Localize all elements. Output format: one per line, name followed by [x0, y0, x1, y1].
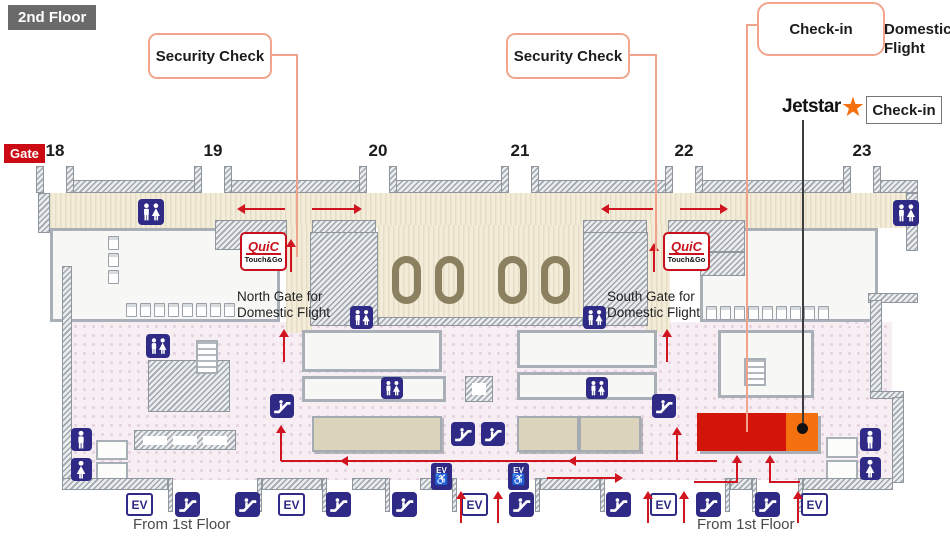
restroom-men-women-icon — [893, 200, 919, 226]
counter-center-left — [312, 416, 442, 452]
hall-bottom-wall — [378, 317, 583, 326]
gate-opening — [673, 180, 695, 193]
outer-wall-bottom-5 — [540, 478, 600, 490]
outer-wall-bottom-2 — [262, 478, 322, 490]
floor-label: 2nd Floor — [8, 5, 96, 30]
gate-wall-stub — [359, 166, 367, 193]
escalator-icon — [606, 492, 631, 517]
restroom-men-women-icon — [381, 377, 403, 399]
hall-oval-3 — [498, 256, 527, 304]
escalator-icon — [652, 394, 676, 418]
jetstar-logo: Jetstar★ — [782, 96, 865, 118]
leader-security-left-v — [296, 54, 298, 257]
domestic-flight-label: Domestic Flight — [884, 20, 950, 58]
restroom-women-icon — [860, 457, 881, 480]
gate-number-23: 23 — [847, 141, 877, 161]
hall-oval-1 — [392, 256, 421, 304]
escalator-icon — [270, 394, 294, 418]
counter-block-left — [134, 430, 236, 450]
room-e — [718, 330, 814, 398]
gate-number-20: 20 — [363, 141, 393, 161]
elevator-ev-icon: EV — [278, 493, 305, 516]
hall-oval-4 — [541, 256, 570, 304]
restroom-men-icon — [71, 428, 92, 451]
gate-opening — [509, 180, 531, 193]
security-check-callout-right: Security Check — [506, 33, 630, 79]
escalator-icon — [326, 492, 351, 517]
escalator-icon — [451, 422, 475, 446]
gate-opening — [202, 180, 224, 193]
leader-jetstar-dot — [797, 423, 808, 434]
restroom-men-women-icon — [350, 306, 373, 329]
gate-wall-stub — [389, 166, 397, 193]
leader-security-right-v — [655, 54, 657, 251]
gate-opening — [851, 180, 873, 193]
small-room-left-1 — [96, 440, 128, 460]
leader-jetstar — [802, 120, 804, 428]
outer-wall-bottom-7 — [803, 478, 893, 490]
quic-touch-and-go-logo: QuiCTouch&Go — [663, 232, 710, 271]
restroom-men-women-icon — [586, 377, 608, 399]
seating-column-north — [108, 236, 119, 284]
wall-right-v2 — [892, 397, 904, 483]
gate-number-22: 22 — [669, 141, 699, 161]
elevator-ev-icon: EV — [801, 493, 828, 516]
checkin-counter-red — [697, 413, 786, 451]
entrance-stub — [725, 478, 730, 512]
gate-number-21: 21 — [505, 141, 535, 161]
seating-row-north — [126, 303, 235, 317]
gate-wall-stub — [843, 166, 851, 193]
restroom-men-women-icon — [583, 306, 606, 329]
wall-right-v1 — [870, 300, 882, 395]
quic-touch-and-go-logo: QuiCTouch&Go — [240, 232, 287, 271]
counter-center-right-2 — [579, 416, 641, 452]
restroom-men-women-icon — [138, 199, 164, 225]
jetstar-star-icon: ★ — [841, 92, 865, 122]
south-gate-label: South Gate for Domestic Flight — [607, 289, 700, 321]
north-gate-label: North Gate for Domestic Flight — [237, 289, 330, 321]
outer-wall-bottom-6 — [730, 478, 752, 490]
leader-checkin-v — [746, 24, 748, 432]
gate-wall-stub — [695, 166, 703, 193]
seating-row-south — [706, 306, 829, 320]
entrance-stub — [535, 478, 540, 512]
escalator-icon — [509, 492, 534, 517]
room-a — [302, 330, 442, 372]
gate-badge: Gate — [4, 144, 45, 163]
entrance-stub — [168, 478, 173, 512]
escalator-icon — [175, 492, 200, 517]
small-room-right-2 — [826, 460, 858, 480]
from-first-floor-label-right: From 1st Floor — [697, 516, 795, 533]
escalator-icon — [392, 492, 417, 517]
restroom-women-icon — [71, 458, 92, 481]
entrance-stub — [600, 478, 605, 512]
restroom-men-women-icon — [146, 334, 170, 358]
gate-opening — [44, 180, 66, 193]
from-first-floor-label-left: From 1st Floor — [133, 516, 231, 533]
entrance-stub — [385, 478, 390, 512]
escalator-icon — [696, 492, 721, 517]
gate-wall-stub — [873, 166, 881, 193]
kiosk-block — [465, 376, 493, 402]
gate-number-19: 19 — [198, 141, 228, 161]
stairs-north — [196, 340, 218, 374]
escalator-icon — [481, 422, 505, 446]
escalator-icon — [235, 492, 260, 517]
accessible-elevator-icon: EV♿ — [431, 463, 452, 490]
escalator-icon — [755, 492, 780, 517]
security-check-callout-left: Security Check — [148, 33, 272, 79]
gate-wall-stub — [66, 166, 74, 193]
restroom-men-icon — [860, 428, 881, 451]
elevator-ev-icon: EV — [650, 493, 677, 516]
jetstar-checkin-box: Check-in — [866, 96, 942, 124]
accessible-elevator-icon: EV♿ — [508, 463, 529, 490]
gate-opening — [367, 180, 389, 193]
gate-wall-stub — [36, 166, 44, 193]
airport-floor-map: EV EV EV EV EV EV♿ EV♿ QuiCTouch&Go QuiC… — [0, 0, 950, 538]
outer-wall-top — [38, 180, 918, 193]
room-c — [517, 330, 657, 368]
small-room-right-1 — [826, 437, 858, 458]
hall-oval-2 — [435, 256, 464, 304]
jetstar-wordmark: Jetstar — [782, 96, 841, 117]
gate-wall-stub — [194, 166, 202, 193]
gate-wall-stub — [531, 166, 539, 193]
counter-center-right-1 — [517, 416, 579, 452]
elevator-ev-icon: EV — [126, 493, 153, 516]
outer-wall-left — [38, 193, 50, 233]
room-b — [302, 376, 446, 402]
gate-wall-stub — [501, 166, 509, 193]
gate-wall-stub — [224, 166, 232, 193]
gate-corridor — [50, 193, 906, 228]
gate-wall-stub — [665, 166, 673, 193]
checkin-callout: Check-in — [757, 2, 885, 56]
